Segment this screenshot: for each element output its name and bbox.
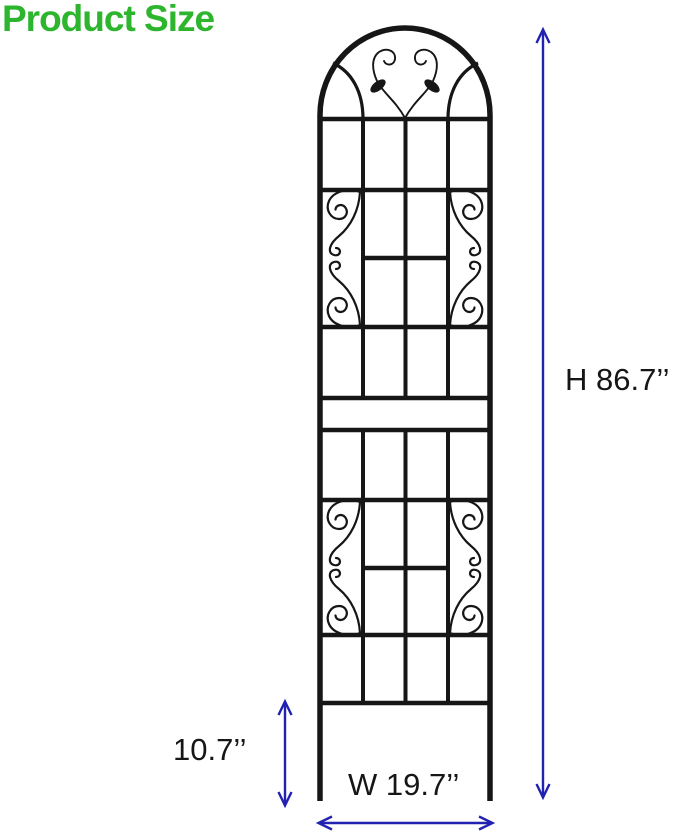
stake-arrow [279,702,292,806]
stake-dimension-label: 10.7’’ [173,733,247,767]
height-dimension-label: H 86.7’’ [565,363,670,397]
height-arrow [537,30,550,798]
product-size-diagram: Product Size [0,0,679,833]
trellis-inner-arches [333,63,478,119]
trellis [318,28,492,801]
width-dimension-label: W 19.7’’ [348,768,459,802]
crown-leaves [368,77,442,95]
trellis-illustration [0,0,679,833]
width-arrow [319,817,493,830]
trellis-vertical-wires [363,119,448,703]
